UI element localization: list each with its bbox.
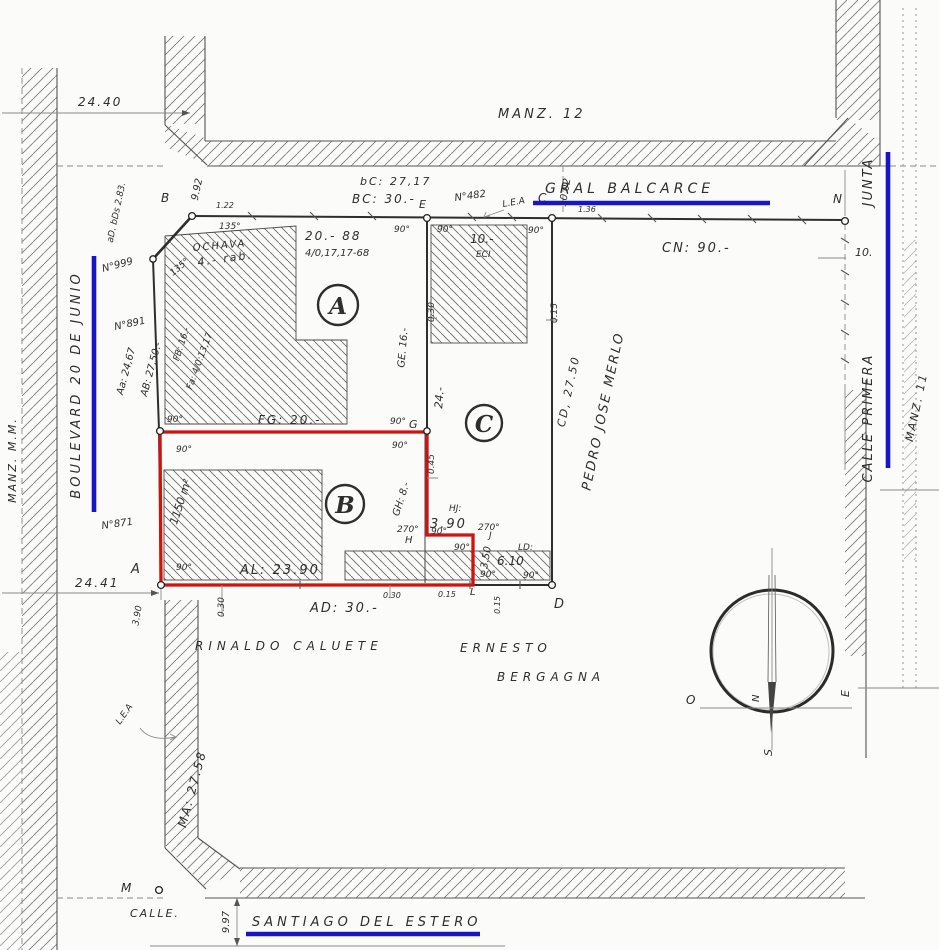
parcel-c-letter: C (475, 411, 494, 438)
street-label-calle-primera: CALLE PRIMERA (861, 354, 876, 483)
angle-90-l: 90° (480, 570, 496, 580)
angle-90-e-left: 90° (394, 225, 410, 235)
seg-ab: AB: 27,50.- (139, 341, 164, 399)
angle-90-c: 90° (528, 226, 544, 236)
point-m-marker (156, 887, 163, 894)
angle-90-j-inner: 90° (454, 543, 470, 553)
point-label-e: E (419, 198, 426, 211)
point-a-chamfer-marker (150, 256, 156, 262)
west-block-band (22, 68, 57, 950)
seg-fg: FG: 20.- (258, 413, 321, 427)
north-west-corner-band (165, 36, 205, 124)
dim-610: 6.10 (497, 554, 524, 568)
dim-015-b: 0.15 (438, 590, 456, 599)
ref-n871: N°871 (101, 517, 134, 532)
seg-bc-lower: bC: 27,17 (360, 175, 431, 188)
dim-122: 1.22 (216, 201, 234, 210)
dim-992: 9.92 (190, 177, 205, 201)
angle-270-h: 270° (397, 525, 419, 535)
angle-90-a: 90° (176, 563, 192, 573)
dim-10: 10. (855, 246, 873, 259)
parcel-b-letter: B (334, 492, 354, 519)
street-label-santiago: SANTIAGO DEL ESTERO (252, 915, 481, 930)
seg-ld: LD: (518, 543, 533, 553)
owner-bergagna: BERGAGNA (497, 670, 605, 684)
point-n-marker (842, 218, 849, 225)
point-f-marker (157, 428, 164, 435)
point-label-a: A (130, 562, 140, 577)
street-label-junta: JUNTA (861, 158, 876, 210)
point-label-m: M (121, 881, 132, 895)
point-b-marker (189, 213, 196, 220)
compass-east-label: E (839, 690, 852, 697)
angle-90-f-top: 90° (167, 415, 183, 425)
ref-lea-left: L.E.A (114, 702, 135, 726)
street-block-bands (0, 0, 916, 950)
dim-390-b: 3.90 (131, 605, 144, 627)
seg-ge: GE. 16.- (396, 327, 410, 368)
seg-al: AL: 23.90 (239, 563, 320, 578)
dim-045: 0.45 (427, 454, 437, 474)
ref-lea-top: L.E.A (502, 196, 526, 210)
owner-rinaldo-caluete: RINALDO CALUETE (195, 639, 383, 653)
dim-136: 1.36 (578, 205, 596, 214)
point-label-c: C (538, 191, 547, 205)
angle-90-h: 90° (431, 527, 447, 537)
seg-cd: CD, 27.50 (555, 354, 583, 428)
point-c-marker (549, 215, 556, 222)
dim-030-c: 0.30 (383, 591, 401, 600)
boundary-north (192, 216, 845, 220)
owner-ernesto: ERNESTO (460, 641, 552, 655)
ref-adbds: aD. bDs 2.83. (106, 182, 129, 244)
dim-030-a: 0.30 (427, 302, 437, 322)
note-parcel-a-2: 4/0,17,17-68 (305, 248, 369, 259)
compass-rose: O E S N (686, 548, 852, 756)
dim-030-b: 0.30 (217, 597, 227, 617)
note-parcel-a-1: 20.- 88 (305, 229, 362, 243)
dim-2440: 24.40 (78, 95, 122, 109)
seg-ad: AD: 30.- (309, 601, 379, 616)
note-parcel-c-2: ECI (476, 250, 491, 260)
compass-south-label: S (762, 749, 775, 756)
north-east-corner-band (836, 0, 880, 120)
point-d-marker (549, 582, 556, 589)
owner-pedro-jose-merlo: PEDRO JOSE MERLO (579, 331, 627, 492)
street-label-boulevard: BOULEVARD 20 DE JUNIO (69, 271, 84, 498)
south-west-chamfer-band (165, 838, 240, 888)
compass-west-label: O (686, 693, 695, 707)
angle-90-g-top: 90° (390, 417, 406, 427)
ref-n999: N°999 (101, 256, 134, 275)
point-label-h: H (405, 535, 413, 546)
north-west-chamfer-band (165, 124, 207, 164)
west-edge-band (0, 652, 22, 950)
ref-n891: N°891 (113, 316, 146, 333)
angle-90-d: 90° (523, 571, 539, 581)
south-block-band (240, 868, 845, 898)
survey-plan: O E S N MANZ. 12 GRAL BALCARCE BOULEVARD… (0, 0, 939, 950)
seg-gh: GH: 8.- (391, 481, 412, 518)
dim-015-c: 0.15 (493, 596, 502, 614)
parcel-a-letter: A (327, 293, 347, 320)
angle-135-a: 135° (219, 222, 241, 232)
point-label-n: N (833, 192, 842, 206)
note-parcel-c-1: 10.- (470, 232, 493, 246)
dim-2441: 24.41 (75, 576, 119, 590)
point-label-l: L (470, 587, 476, 598)
point-label-g: G (409, 418, 418, 431)
angle-90-f-inner: 90° (176, 445, 192, 455)
angle-270-j: 270° (478, 523, 500, 533)
seg-hj: HJ: (449, 504, 461, 514)
seg-c24: 24.- (432, 386, 447, 409)
block-label-manz14: MANZ. M.M. (6, 417, 19, 503)
point-a2-marker (158, 582, 165, 589)
seg-bc: BC: 30.- (352, 192, 416, 206)
angle-90-e-right: 90° (437, 225, 453, 235)
survey-plan-drawing: O E S N MANZ. 12 GRAL BALCARCE BOULEVARD… (0, 0, 939, 950)
point-g-marker (424, 428, 430, 434)
point-label-d: D (554, 597, 564, 612)
point-e-marker (424, 215, 431, 222)
seg-cn: CN: 90.- (662, 241, 731, 256)
ref-n482: N°482 (454, 189, 487, 204)
north-block-band (205, 141, 836, 166)
seg-aa: Aa: 24,67 (115, 346, 139, 397)
dim-015-a: 0.15 (550, 303, 560, 323)
angle-90-g-inner: 90° (392, 441, 408, 451)
dim-997: 9.97 (221, 910, 232, 933)
compass-north-label: N (751, 694, 762, 702)
block-label-manz12: MANZ. 12 (498, 107, 586, 122)
street-label-calle: CALLE. (130, 907, 180, 920)
lea-top-arrow (484, 210, 504, 217)
point-label-b: B (161, 191, 169, 205)
